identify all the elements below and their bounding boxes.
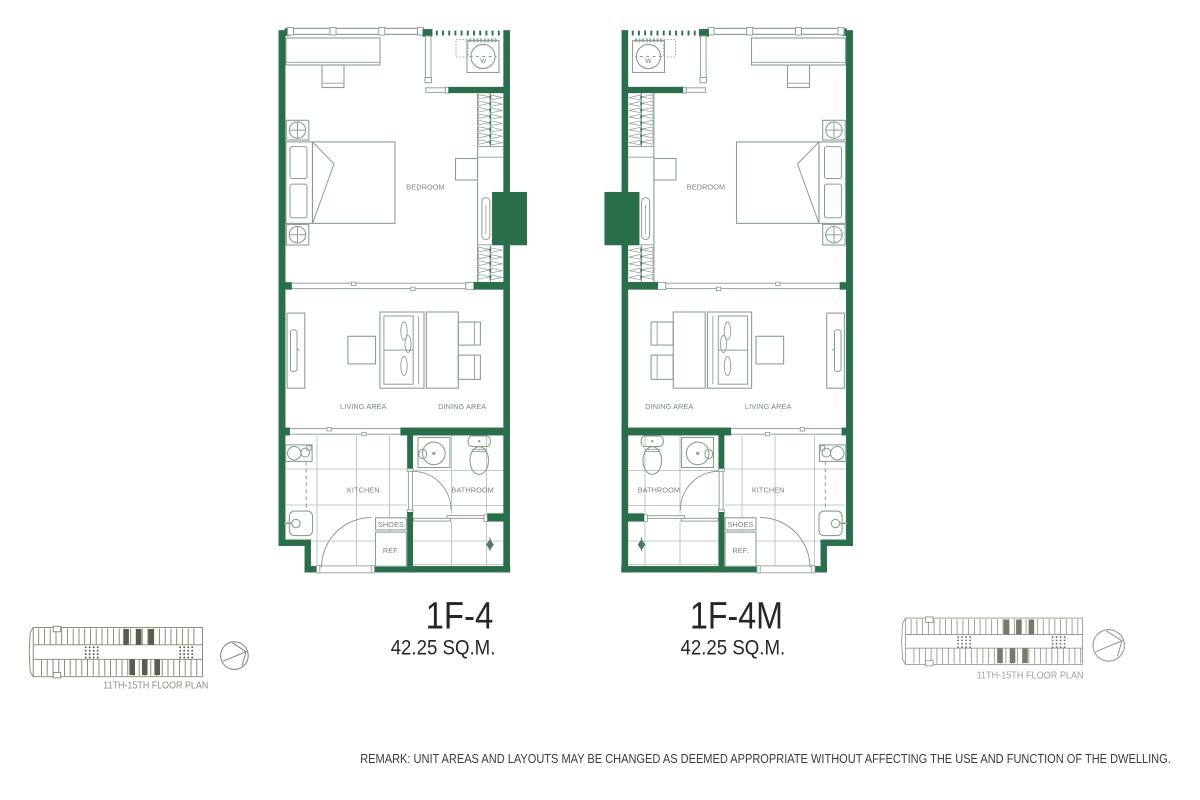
svg-text:LIVING AREA: LIVING AREA [340, 402, 387, 411]
svg-text:REF.: REF. [383, 546, 399, 555]
svg-text:BEDROOM: BEDROOM [687, 183, 725, 192]
svg-text:LIVING AREA: LIVING AREA [745, 402, 792, 411]
svg-text:SHOES: SHOES [727, 520, 753, 529]
svg-text:11TH-15TH FLOOR PLAN: 11TH-15TH FLOOR PLAN [103, 679, 208, 691]
svg-text:BATHROOM: BATHROOM [451, 486, 493, 495]
svg-text:DINING AREA: DINING AREA [645, 402, 693, 411]
svg-text:42.25 SQ.M.: 42.25 SQ.M. [681, 636, 786, 660]
svg-text:W: W [480, 58, 487, 65]
svg-text:DINING AREA: DINING AREA [438, 402, 486, 411]
svg-text:KITCHEN: KITCHEN [347, 486, 380, 495]
svg-text:REMARK: UNIT AREAS AND LAYOUTS: REMARK: UNIT AREAS AND LAYOUTS MAY BE CH… [360, 751, 1171, 766]
svg-text:REF.: REF. [732, 546, 748, 555]
svg-text:1F-4M: 1F-4M [690, 596, 783, 638]
svg-text:1F-4: 1F-4 [426, 596, 494, 638]
svg-text:BEDROOM: BEDROOM [406, 183, 444, 192]
svg-text:W: W [645, 58, 652, 65]
svg-text:SHOES: SHOES [378, 520, 404, 529]
svg-text:KITCHEN: KITCHEN [752, 486, 785, 495]
svg-text:11TH-15TH FLOOR PLAN: 11TH-15TH FLOOR PLAN [977, 670, 1084, 682]
svg-text:BATHROOM: BATHROOM [638, 486, 680, 495]
svg-text:42.25 SQ.M.: 42.25 SQ.M. [391, 636, 496, 660]
